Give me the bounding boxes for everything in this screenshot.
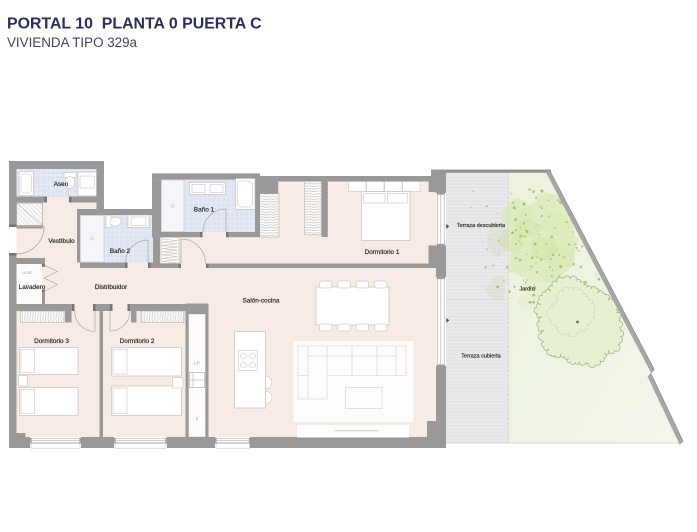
svg-text:Salón-cocina: Salón-cocina [243, 298, 280, 305]
svg-text:PORTAL 10 PLANTA 0 PUERTA C: PORTAL 10 PLANTA 0 PUERTA C [7, 16, 262, 33]
svg-text:Vestíbulo: Vestíbulo [48, 238, 75, 245]
svg-text:Baño 1: Baño 1 [194, 207, 215, 214]
svg-text:Lavadero: Lavadero [19, 284, 46, 291]
svg-text:Dormitorio 2: Dormitorio 2 [120, 338, 155, 345]
svg-text:LV/SC: LV/SC [22, 271, 33, 275]
svg-text:Terraza cubierta: Terraza cubierta [461, 354, 501, 360]
svg-text:Distribuidor: Distribuidor [95, 284, 128, 291]
svg-text:Jardín: Jardín [519, 287, 534, 293]
svg-text:Terraza descubierta: Terraza descubierta [457, 223, 506, 229]
svg-text:VIVIENDA TIPO 329a: VIVIENDA TIPO 329a [7, 35, 138, 50]
svg-text:Dormitorio 1: Dormitorio 1 [365, 249, 400, 256]
svg-text:Baño 2: Baño 2 [110, 248, 131, 255]
svg-text:Dormitorio 3: Dormitorio 3 [34, 338, 69, 345]
svg-text:F: F [196, 417, 199, 422]
svg-text:LP: LP [194, 361, 200, 366]
svg-text:Aseo: Aseo [54, 181, 69, 188]
